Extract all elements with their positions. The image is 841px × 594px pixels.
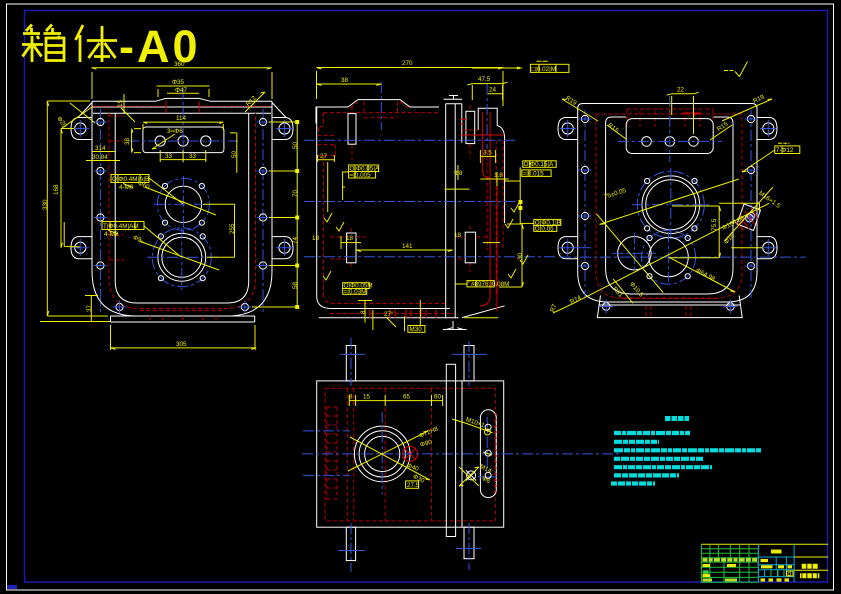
svg-text:27: 27: [320, 153, 328, 160]
svg-text:38: 38: [341, 77, 349, 84]
svg-text:4-M0: 4-M0: [119, 184, 134, 191]
svg-text:M30: M30: [410, 326, 423, 333]
svg-text:168: 168: [53, 184, 60, 195]
svg-text:75.5: 75.5: [711, 218, 718, 231]
svg-text:27°: 27°: [384, 310, 394, 318]
svg-text:74: 74: [292, 236, 299, 244]
svg-text:=|0.03M: =|0.03M: [344, 288, 367, 295]
svg-text:Φ35: Φ35: [172, 79, 185, 86]
svg-text:360: 360: [174, 61, 185, 68]
svg-text:3=Φ6: 3=Φ6: [167, 128, 183, 135]
svg-text:58: 58: [292, 281, 299, 289]
svg-text:24: 24: [489, 87, 497, 94]
svg-text:305: 305: [176, 341, 187, 348]
svg-text:3.5: 3.5: [483, 150, 492, 157]
svg-text:□|0.02|M: □|0.02|M: [531, 66, 556, 73]
svg-text:T|Φ0.4M|AM: T|Φ0.4M|AM: [103, 223, 139, 230]
svg-text:=|0.015: =|0.015: [523, 170, 545, 177]
svg-text:30.84: 30.84: [92, 154, 108, 161]
svg-text:15: 15: [363, 394, 371, 401]
svg-text:38: 38: [124, 137, 131, 145]
svg-text:8: 8: [349, 394, 353, 401]
svg-text:18: 18: [454, 232, 462, 239]
svg-text:270: 270: [402, 60, 413, 67]
svg-text:8: 8: [360, 310, 367, 314]
svg-text:255: 255: [229, 223, 236, 234]
svg-text:70: 70: [292, 189, 299, 197]
svg-text:60: 60: [434, 394, 442, 401]
svg-text:4-M2: 4-M2: [104, 231, 119, 238]
svg-text:27.5: 27.5: [407, 482, 420, 489]
svg-text:18: 18: [346, 235, 354, 242]
svg-text:37: 37: [86, 304, 93, 312]
svg-text:O|Φ0.15|A: O|Φ0.15|A: [524, 161, 554, 168]
svg-text:30: 30: [517, 252, 524, 260]
svg-text:314: 314: [95, 145, 106, 152]
svg-text:-A0: -A0: [119, 21, 201, 72]
svg-text:47.5: 47.5: [478, 76, 491, 83]
svg-text:50: 50: [292, 141, 299, 149]
svg-text:7-Φ12: 7-Φ12: [776, 147, 794, 154]
svg-text:Φ47: Φ47: [175, 87, 188, 94]
svg-text:1.8: 1.8: [494, 172, 503, 179]
svg-text:=|0.005: =|0.005: [350, 172, 372, 179]
svg-text:22: 22: [677, 87, 685, 94]
svg-text:15: 15: [117, 99, 124, 107]
svg-text:d: d: [788, 571, 792, 578]
svg-text:330: 330: [42, 199, 49, 210]
svg-text:33: 33: [189, 153, 197, 160]
svg-text:65: 65: [403, 394, 411, 401]
svg-text:33: 33: [165, 153, 173, 160]
svg-text:50: 50: [231, 150, 238, 158]
svg-text:141: 141: [402, 243, 413, 250]
svg-text:18: 18: [312, 235, 320, 242]
svg-text:O|0.05: O|0.05: [535, 225, 554, 232]
svg-text:Φ8: Φ8: [454, 170, 463, 177]
svg-text:114: 114: [176, 115, 187, 122]
